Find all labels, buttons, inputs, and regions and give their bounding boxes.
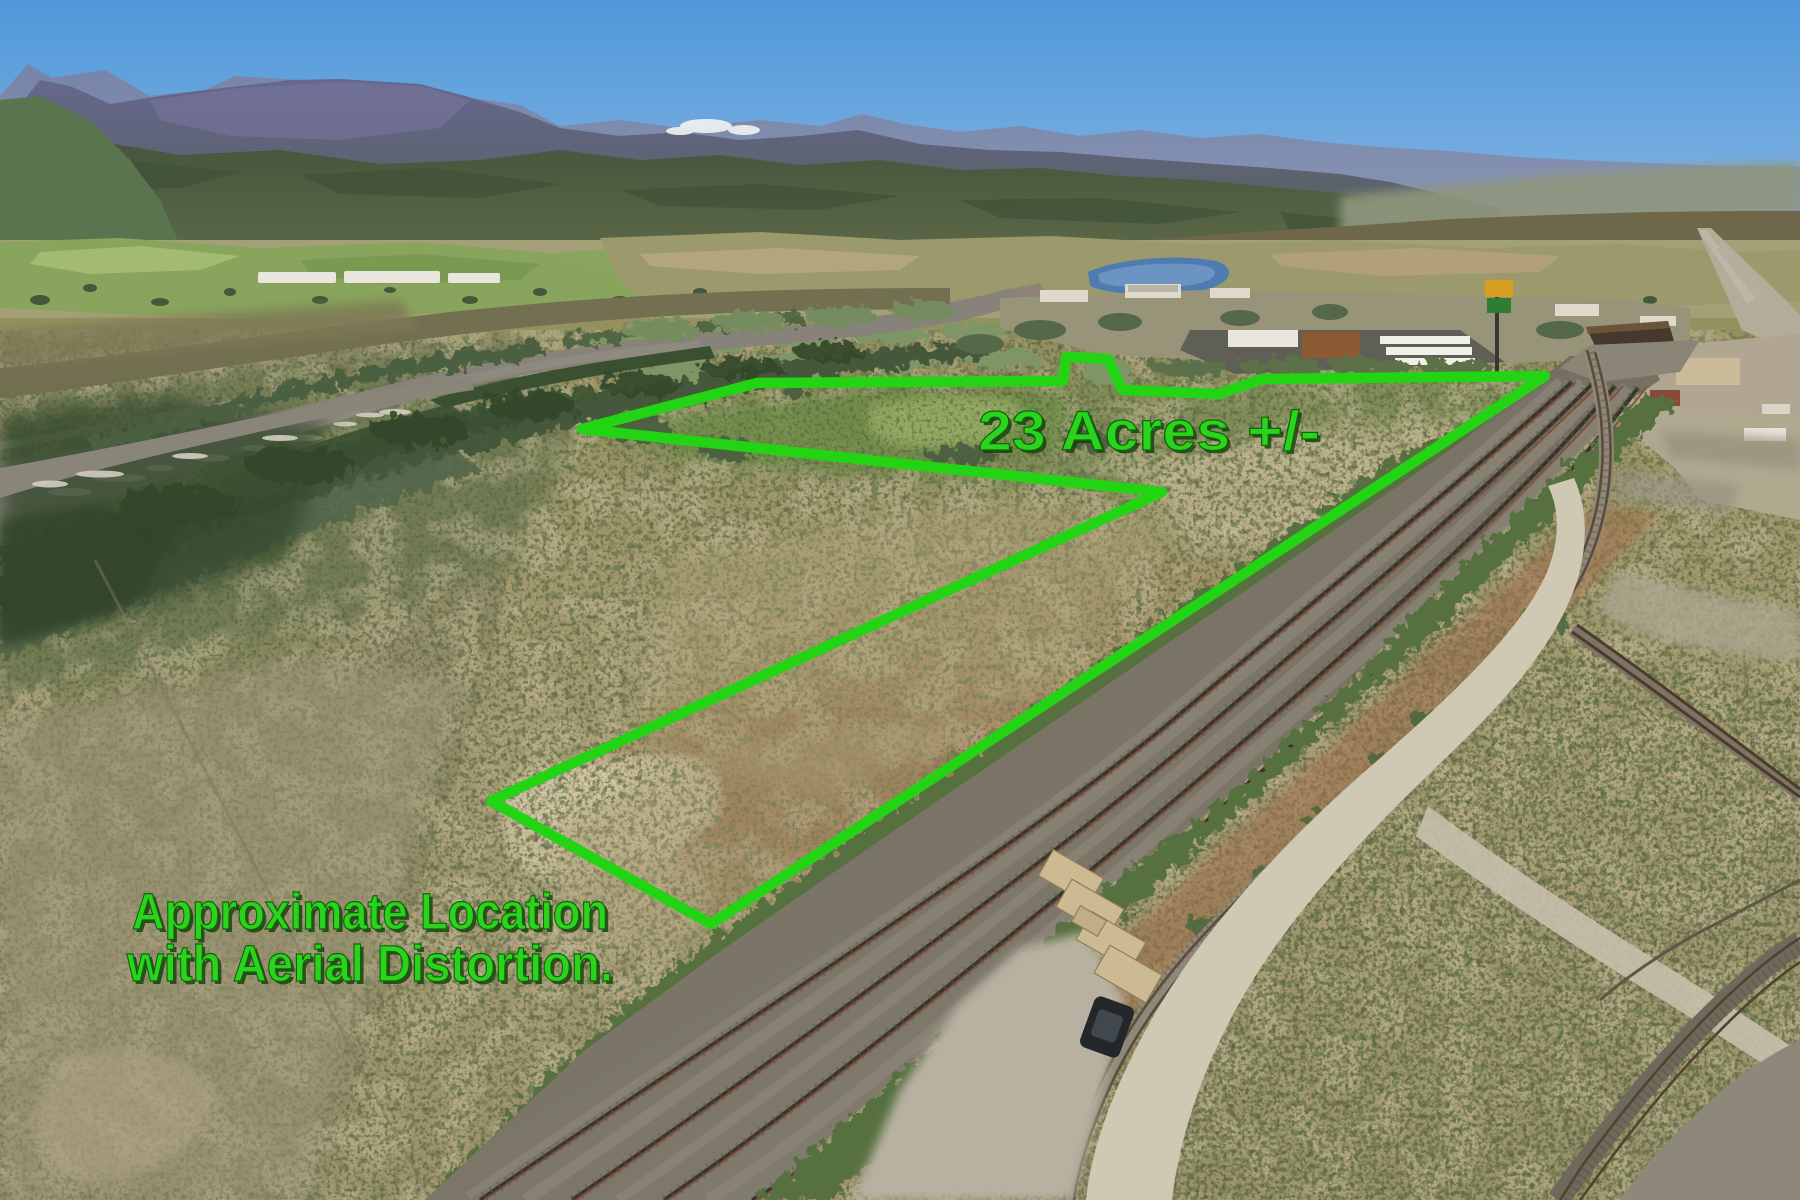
svg-text:Approximate Location: Approximate Location: [132, 883, 608, 940]
svg-text:with Aerial Distortion.: with Aerial Distortion.: [126, 935, 613, 992]
svg-text:23 Acres +/-: 23 Acres +/-: [978, 399, 1320, 462]
